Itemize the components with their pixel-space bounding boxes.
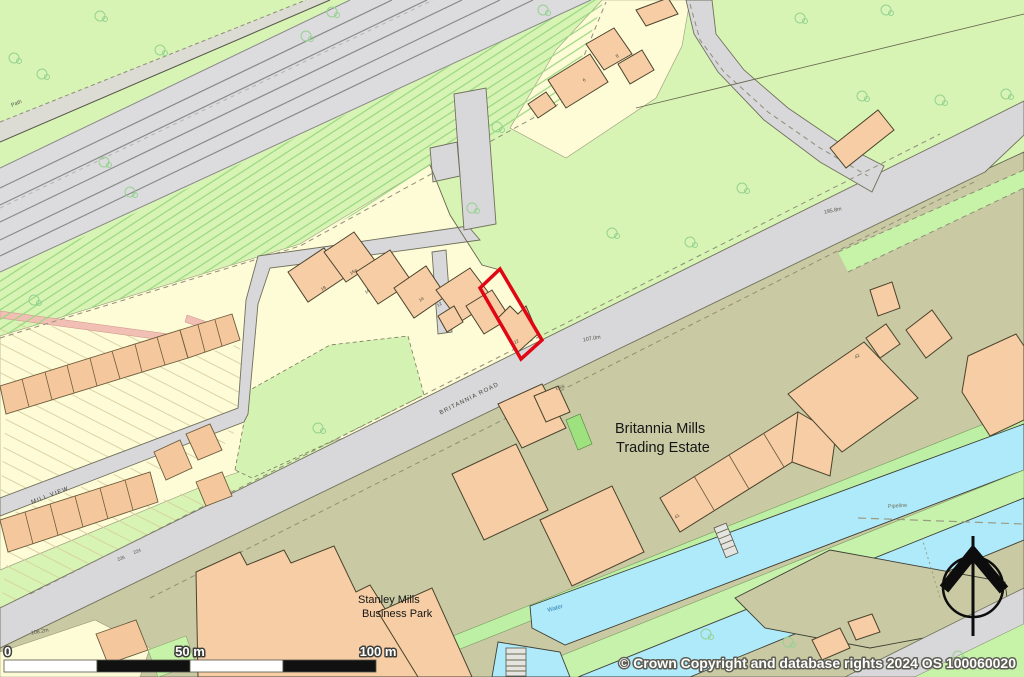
scale-tick-50: 50 m [175, 644, 205, 659]
scale-tick-0: 0 [4, 644, 11, 659]
scale-tick-100: 100 m [360, 644, 397, 659]
label-stanley-mills: Stanley Mills [358, 594, 420, 606]
attribution-text: © Crown Copyright and database rights 20… [619, 655, 1016, 671]
steps [506, 648, 526, 676]
os-map: Britannia Mills Trading Estate Stanley M… [0, 0, 1024, 677]
label-britannia-mills: Britannia Mills [615, 421, 705, 437]
map-viewport: Britannia Mills Trading Estate Stanley M… [0, 0, 1024, 677]
label-trading-estate: Trading Estate [616, 440, 710, 456]
label-business-park: Business Park [362, 608, 433, 620]
